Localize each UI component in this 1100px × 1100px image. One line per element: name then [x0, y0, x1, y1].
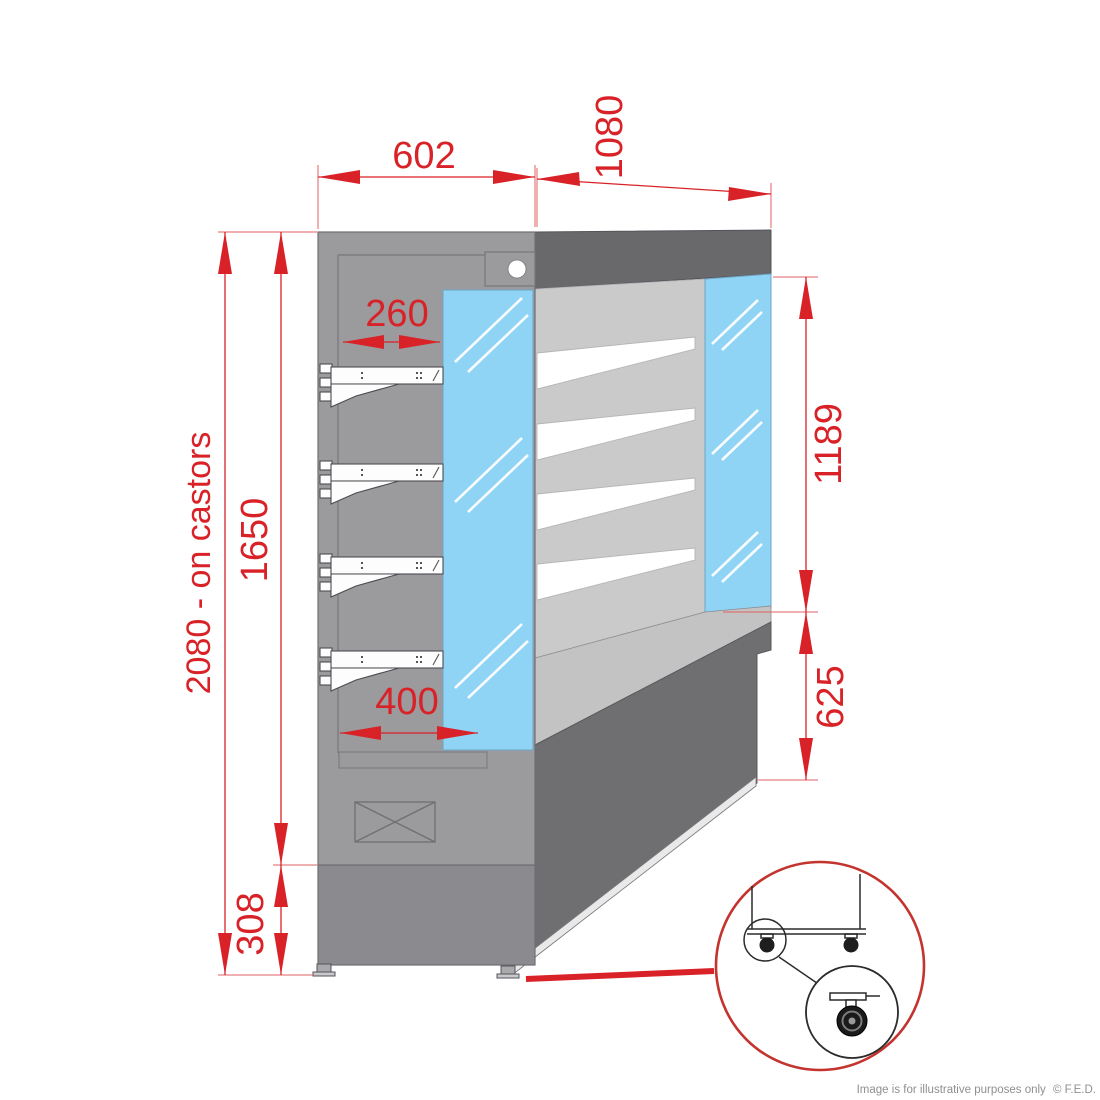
magnified-castor	[806, 966, 898, 1058]
front-glass-panel	[443, 290, 533, 750]
dim-label-glass-height: 1189	[810, 403, 848, 485]
dim-label-base-front: 625	[812, 665, 850, 728]
dim-label-top-width: 602	[392, 137, 455, 175]
display-case-drawing	[0, 0, 1100, 1100]
footer-copyright: © F.E.D.	[1053, 1084, 1096, 1096]
foot	[313, 964, 335, 976]
footer-note: Image is for illustrative purposes only	[857, 1084, 1046, 1096]
footer-disclaimer: Image is for illustrative purposes only …	[853, 1084, 1096, 1096]
castor-detail	[716, 862, 924, 1070]
castor-wheel	[844, 938, 859, 953]
callout-pointer-line	[526, 971, 714, 979]
lamp-indicator	[508, 260, 526, 278]
light-box	[485, 252, 535, 286]
dim-label-depth: 1080	[591, 95, 629, 180]
dim-label-base-height: 308	[232, 892, 270, 955]
dim-label-upper-shelf: 260	[365, 295, 428, 333]
end-glass-panel	[705, 274, 771, 613]
base-2d	[318, 865, 535, 965]
tray-front-strip	[339, 752, 487, 768]
dimension-diagram: 602 1080 260 400 1650 2080 - on castors …	[0, 0, 1100, 1100]
dim-label-overall-height: 2080 - on castors	[182, 432, 216, 695]
dim-label-body-height: 1650	[236, 498, 274, 583]
dim-label-lower-shelf: 400	[375, 683, 438, 721]
castor-feet	[313, 964, 519, 978]
castor-wheel	[760, 938, 775, 953]
